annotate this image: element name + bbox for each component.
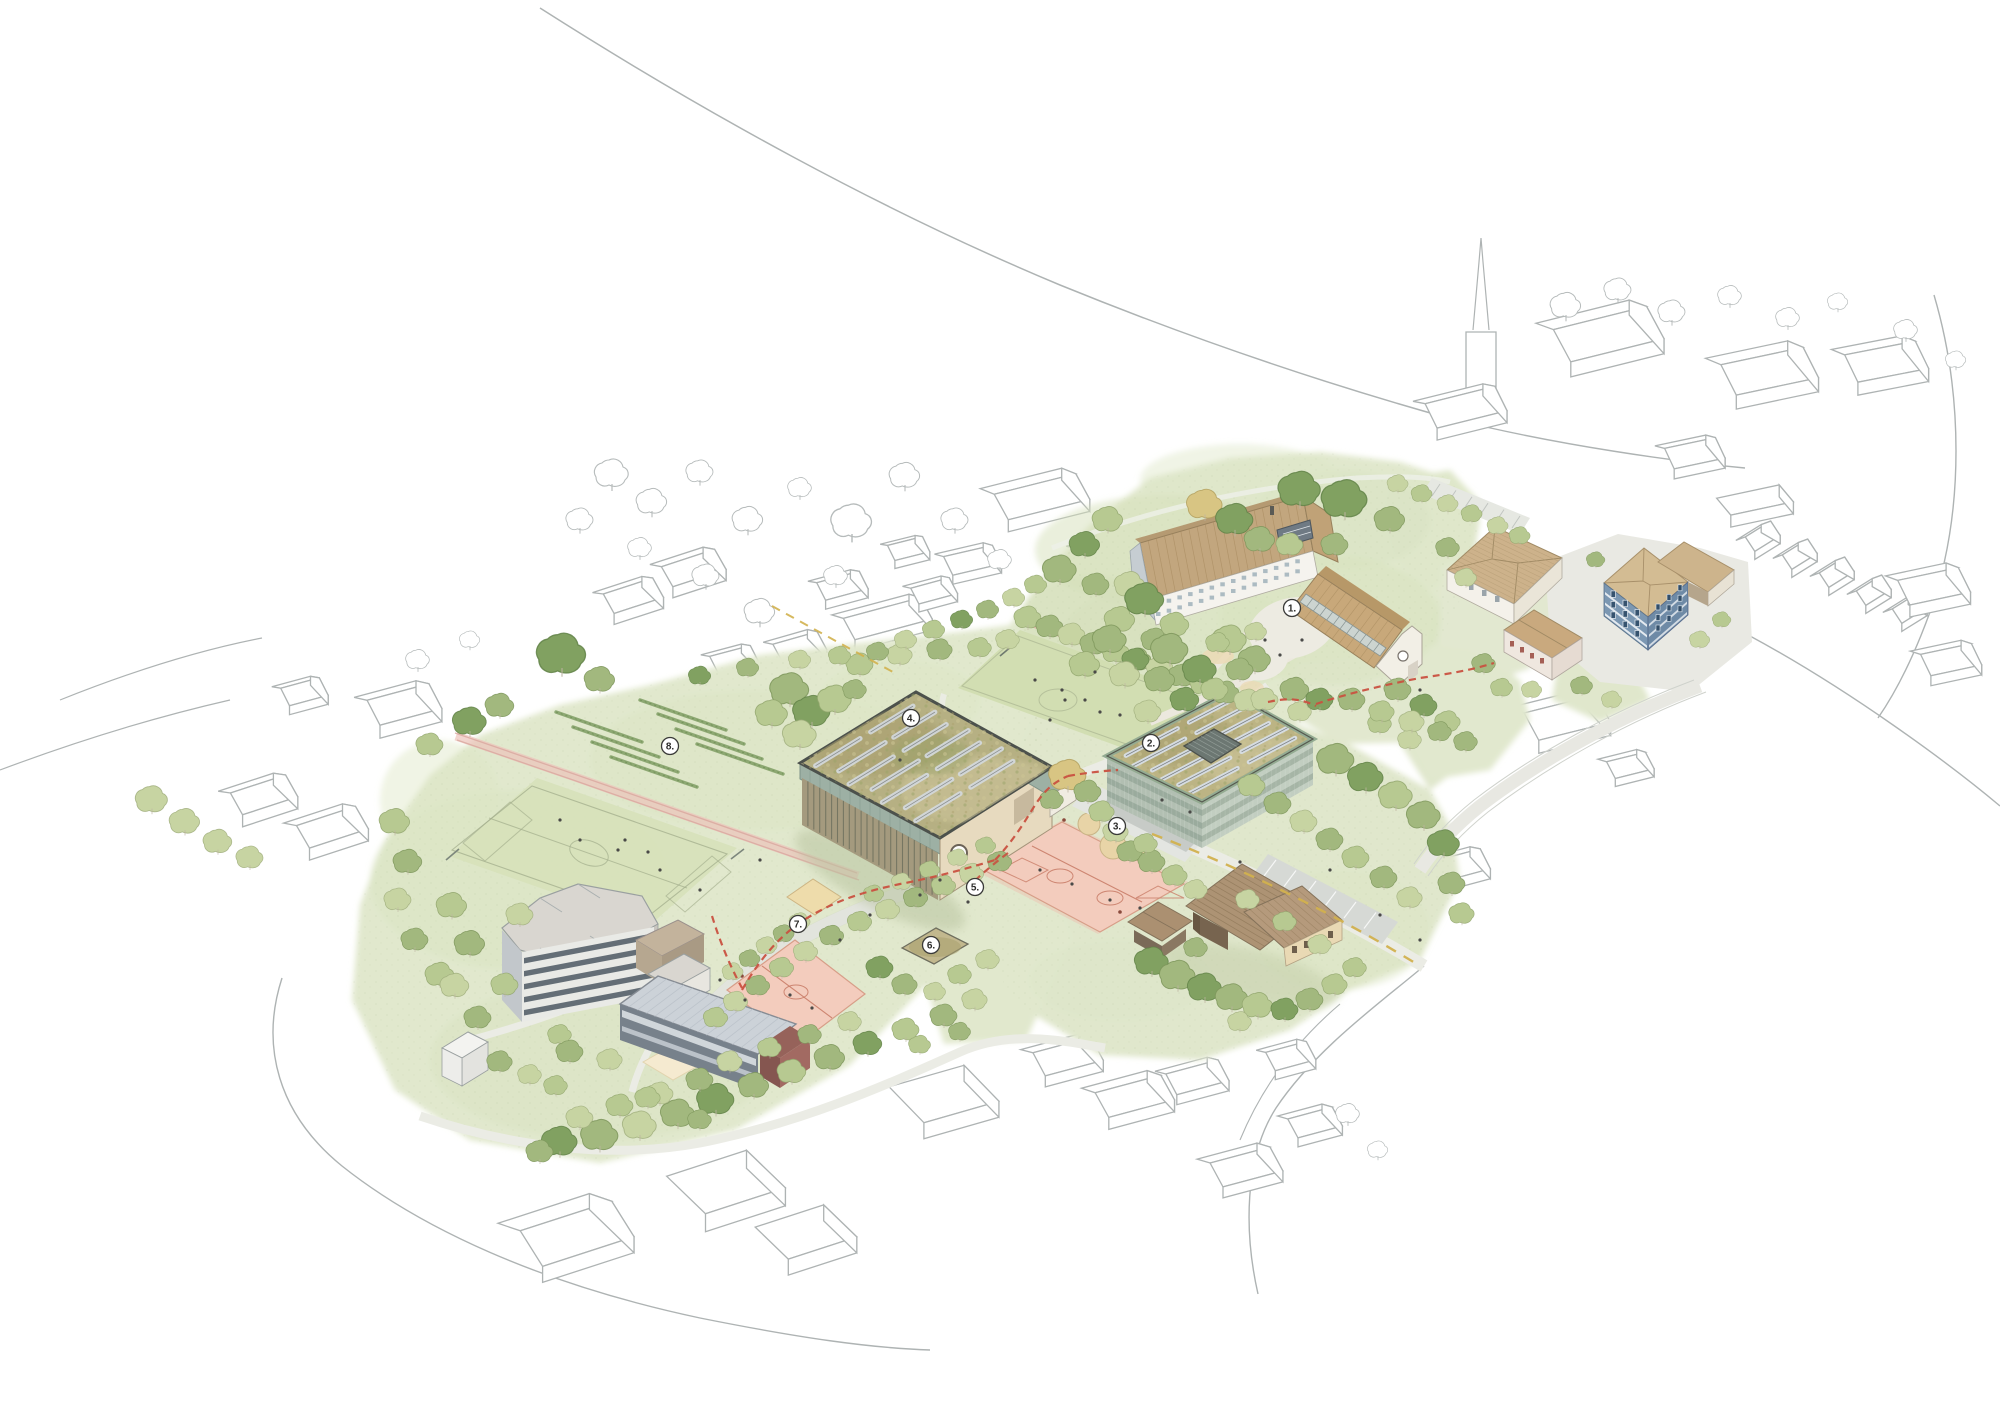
svg-text:6.: 6.: [927, 941, 936, 952]
svg-text:1.: 1.: [1288, 604, 1297, 615]
svg-text:3.: 3.: [1113, 822, 1122, 833]
svg-text:2.: 2.: [1147, 739, 1156, 750]
svg-text:4.: 4.: [907, 714, 916, 725]
svg-text:8.: 8.: [666, 742, 675, 753]
svg-text:5.: 5.: [971, 883, 980, 894]
svg-text:7.: 7.: [794, 920, 803, 931]
